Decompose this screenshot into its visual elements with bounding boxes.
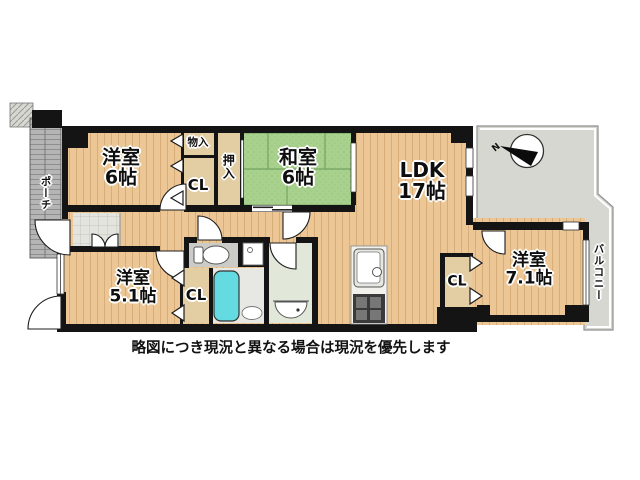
label-storage: 物入: [188, 138, 209, 149]
label-oshiire: 押入: [222, 154, 234, 180]
label-cl-north: CL: [188, 178, 209, 194]
label-cl-east: CL: [447, 275, 466, 290]
bath-stool: [242, 307, 262, 320]
label-room-west1: 洋室6帖: [102, 148, 140, 188]
ps-basin: [243, 243, 263, 265]
label-room-washitsu: 和室6帖: [279, 148, 317, 188]
bathtub: [214, 271, 239, 321]
hatched-structure: [10, 103, 33, 127]
label-balcony: バルコニー: [593, 243, 604, 301]
label-room-west2: 洋室5.1帖: [109, 270, 156, 305]
disclaimer-caption: 略図につき現況と異なる場合は現況を優先します: [132, 337, 451, 358]
label-cl-south: CL: [186, 288, 207, 304]
toilet-fixture: [194, 246, 229, 264]
floorplan-page: N 洋室6帖 物入 CL 押入 和室6帖 LDK17帖 洋室5.1帖 CL CL…: [0, 0, 640, 480]
label-room-ldk: LDK17帖: [398, 160, 446, 202]
label-room-west3: 洋室7.1帖: [505, 252, 552, 287]
porch-gate-door: [28, 296, 61, 329]
kitchen-counter: [351, 246, 387, 324]
label-porch: ポーチ: [40, 176, 51, 211]
floorplan-graphic: N: [0, 0, 640, 480]
